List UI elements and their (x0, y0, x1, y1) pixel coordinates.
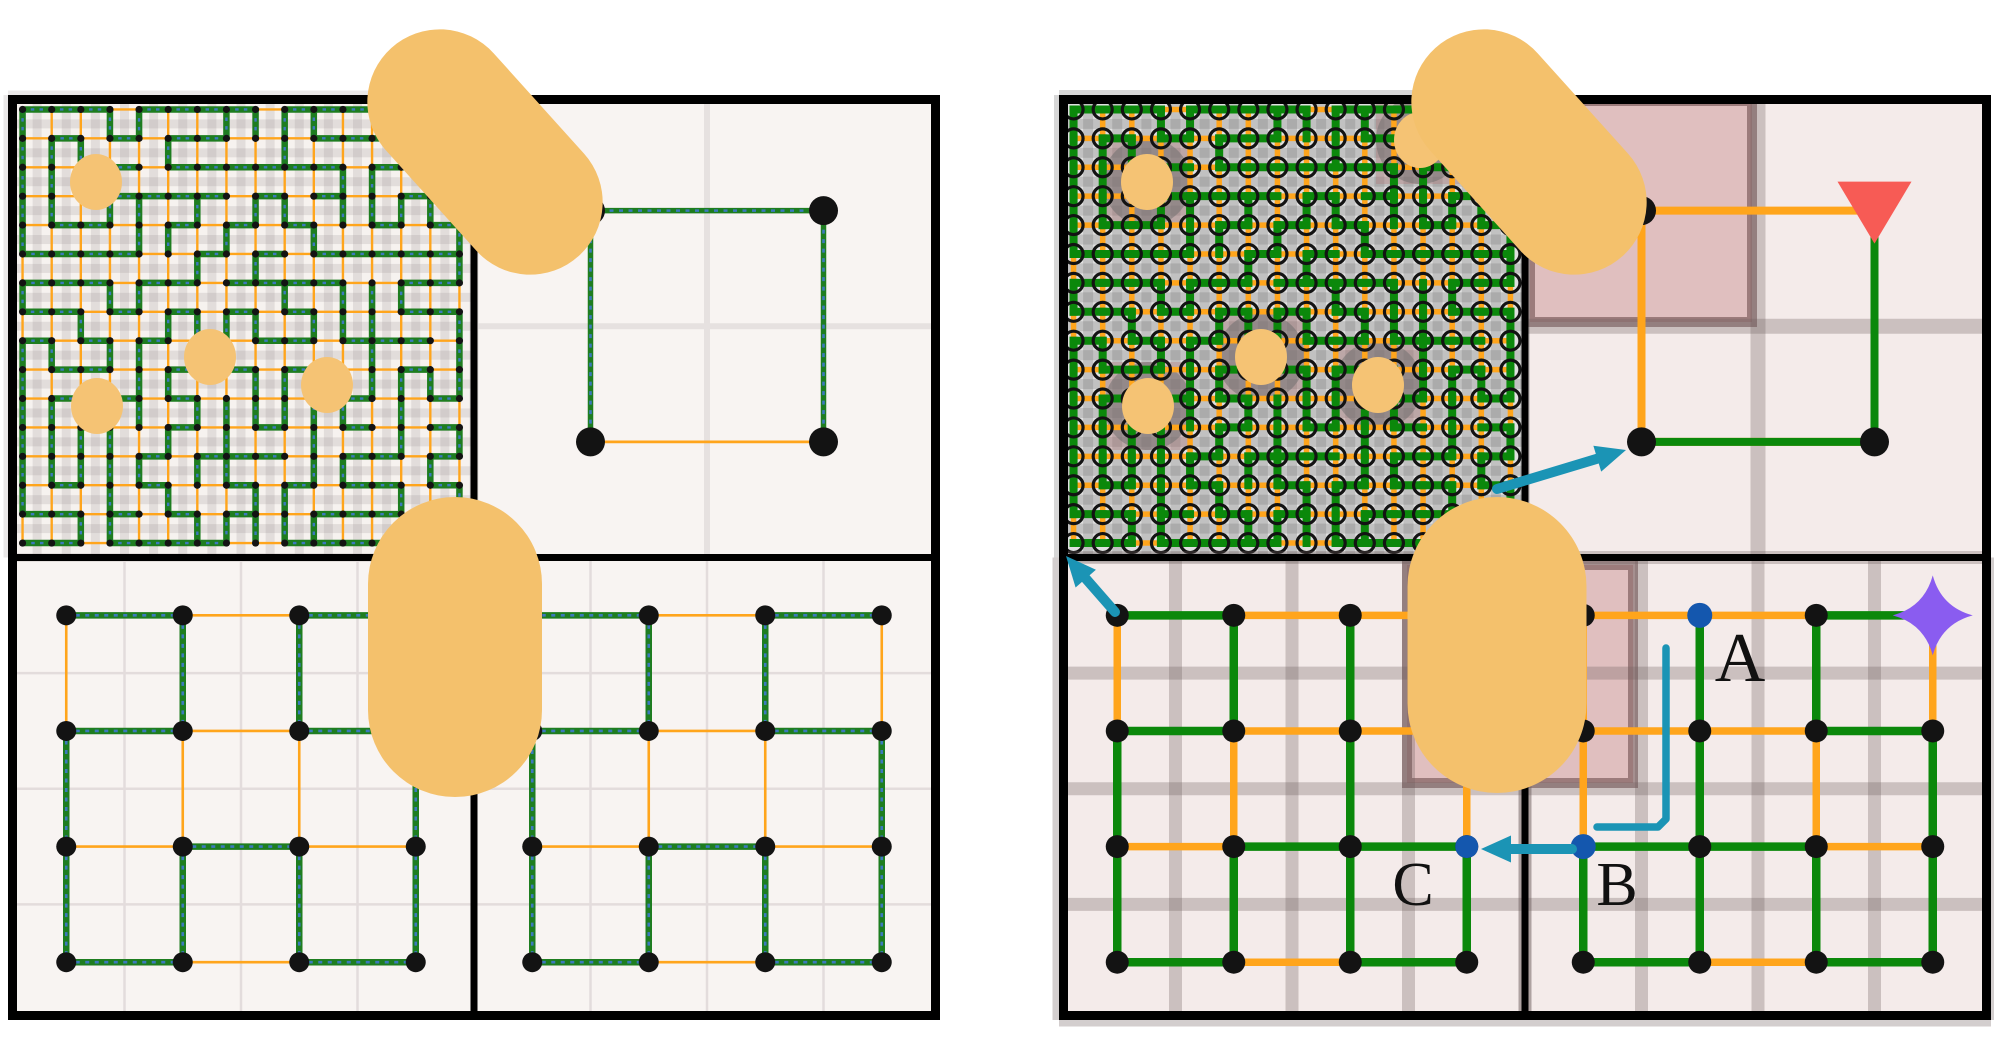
node-dot (368, 511, 375, 518)
node-dot (339, 135, 346, 142)
node-dot (1339, 835, 1362, 858)
node-dot (223, 135, 230, 142)
node-dot (755, 605, 775, 625)
node-dot (252, 221, 259, 228)
node-dot (755, 721, 775, 741)
node-dot (19, 366, 26, 373)
node-dot (19, 539, 26, 546)
node-dot (281, 221, 288, 228)
node-dot (194, 308, 201, 315)
node-dot (165, 250, 172, 257)
node-dot (281, 308, 288, 315)
node-dot (1805, 835, 1828, 858)
node-dot (398, 193, 405, 200)
node-dot (310, 193, 317, 200)
node-dot (368, 482, 375, 489)
node-dot (281, 279, 288, 286)
node-dot (281, 511, 288, 518)
thin-gridline-h (8, 903, 474, 906)
node-dot (1455, 951, 1478, 974)
node-dot (398, 337, 405, 344)
thick-gridline-h (1525, 319, 1991, 334)
node-dot (522, 837, 542, 857)
node-dot (223, 250, 230, 257)
node-dot (368, 221, 375, 228)
node-dot (135, 308, 142, 315)
waypoint-label-a: A (1715, 620, 1766, 697)
node-dot (252, 164, 259, 171)
node-dot (19, 395, 26, 402)
capsule-obstacle-right-mid (1408, 497, 1587, 793)
node-dot (639, 721, 659, 741)
node-dot (19, 511, 26, 518)
node-dot (106, 337, 113, 344)
obstacle-blob (301, 357, 353, 413)
node-dot (252, 511, 259, 518)
node-dot (135, 453, 142, 460)
node-dot (135, 193, 142, 200)
node-dot (173, 952, 193, 972)
node-dot (1805, 951, 1828, 974)
obstacle-blob (184, 329, 236, 385)
node-dot (223, 193, 230, 200)
node-dot (77, 366, 84, 373)
node-dot (252, 337, 259, 344)
node-dot (339, 221, 346, 228)
node-dot (194, 193, 201, 200)
node-dot (135, 482, 142, 489)
node-dot (427, 337, 434, 344)
node-dot (77, 106, 84, 113)
waypoint-label-b: B (1596, 851, 1637, 919)
node-dot (281, 366, 288, 373)
node-dot (1339, 951, 1362, 974)
node-dot (48, 221, 55, 228)
node-dot (106, 366, 113, 373)
node-dot (106, 453, 113, 460)
node-dot (310, 279, 317, 286)
node-dot (456, 308, 463, 315)
node-dot (310, 482, 317, 489)
node-dot (1222, 604, 1245, 627)
node-dot (1339, 719, 1362, 742)
node-dot (252, 453, 259, 460)
node-dot (48, 135, 55, 142)
node-dot (368, 308, 375, 315)
node-dot (106, 250, 113, 257)
node-dot (289, 952, 309, 972)
node-dot (1106, 835, 1129, 858)
node-dot (252, 539, 259, 546)
obstacle-blob (1235, 329, 1287, 385)
node-dot (194, 424, 201, 431)
node-dot (194, 511, 201, 518)
node-dot (872, 721, 892, 741)
node-dot (223, 539, 230, 546)
node-dot (223, 424, 230, 431)
node-dot (310, 453, 317, 460)
node-dot (310, 250, 317, 257)
node-dot (223, 106, 230, 113)
node-dot (406, 837, 426, 857)
node-dot (339, 424, 346, 431)
node-dot (281, 250, 288, 257)
node-dot (339, 279, 346, 286)
node-dot (310, 511, 317, 518)
node-dot (368, 539, 375, 546)
node-dot (456, 395, 463, 402)
node-dot (281, 193, 288, 200)
node-dot (48, 511, 55, 518)
waypoint-c-dot (1455, 835, 1478, 858)
node-dot (135, 221, 142, 228)
node-dot (1627, 427, 1656, 456)
node-dot (339, 308, 346, 315)
node-dot (223, 511, 230, 518)
node-dot (1688, 835, 1711, 858)
node-dot (281, 106, 288, 113)
node-dot (339, 106, 346, 113)
node-dot (427, 366, 434, 373)
node-dot (339, 164, 346, 171)
node-dot (427, 453, 434, 460)
node-dot (368, 424, 375, 431)
node-dot (56, 952, 76, 972)
node-dot (194, 106, 201, 113)
node-dot (456, 250, 463, 257)
node-dot (368, 337, 375, 344)
node-dot (194, 164, 201, 171)
node-dot (77, 453, 84, 460)
node-dot (48, 250, 55, 257)
obstacle-blob (71, 378, 123, 434)
node-dot (19, 221, 26, 228)
node-dot (135, 395, 142, 402)
node-dot (223, 164, 230, 171)
node-dot (456, 482, 463, 489)
node-dot (223, 308, 230, 315)
maze-figure-canvas: ABC (0, 0, 1994, 1039)
node-dot (135, 539, 142, 546)
node-dot (194, 221, 201, 228)
node-dot (77, 135, 84, 142)
thick-gridline-h (1525, 782, 1991, 795)
node-dot (339, 511, 346, 518)
node-dot (19, 453, 26, 460)
node-dot (48, 337, 55, 344)
node-dot (135, 424, 142, 431)
node-dot (48, 164, 55, 171)
node-dot (368, 135, 375, 142)
node-dot (1572, 951, 1595, 974)
mid-gridline-h (474, 323, 940, 329)
node-dot (165, 135, 172, 142)
node-dot (809, 196, 838, 225)
node-dot (755, 952, 775, 972)
node-dot (194, 135, 201, 142)
node-dot (77, 337, 84, 344)
node-dot (135, 279, 142, 286)
thick-gridline-h (1059, 782, 1525, 795)
node-dot (165, 366, 172, 373)
thick-gridline-v (1868, 558, 1881, 1021)
node-dot (194, 395, 201, 402)
node-dot (398, 482, 405, 489)
node-dot (1688, 951, 1711, 974)
node-dot (639, 837, 659, 857)
obstacle-blob (1121, 154, 1173, 210)
node-dot (872, 952, 892, 972)
node-dot (406, 952, 426, 972)
node-dot (165, 482, 172, 489)
node-dot (1222, 835, 1245, 858)
node-dot (135, 366, 142, 373)
thin-gridline-v (356, 558, 359, 1021)
node-dot (252, 250, 259, 257)
thin-gridline-h (474, 788, 940, 791)
node-dot (339, 250, 346, 257)
node-dot (427, 424, 434, 431)
node-dot (106, 221, 113, 228)
node-dot (252, 193, 259, 200)
node-dot (19, 482, 26, 489)
node-dot (165, 395, 172, 402)
node-dot (19, 279, 26, 286)
node-dot (1921, 835, 1944, 858)
node-dot (173, 721, 193, 741)
node-dot (19, 135, 26, 142)
node-dot (456, 337, 463, 344)
node-dot (48, 482, 55, 489)
node-dot (77, 539, 84, 546)
node-dot (252, 395, 259, 402)
plaid-band-h (8, 264, 474, 273)
node-dot (281, 453, 288, 460)
node-dot (19, 308, 26, 315)
node-dot (1805, 719, 1828, 742)
node-dot (368, 453, 375, 460)
thin-gridline-h (474, 903, 940, 906)
node-dot (339, 539, 346, 546)
plaid-band-h (1059, 235, 1525, 245)
obstacle-blob (1352, 357, 1404, 413)
node-dot (872, 605, 892, 625)
node-dot (1805, 604, 1828, 627)
node-dot (48, 539, 55, 546)
node-dot (194, 279, 201, 286)
node-dot (1106, 951, 1129, 974)
node-dot (19, 337, 26, 344)
thin-gridline-v (822, 558, 825, 1021)
node-dot (165, 337, 172, 344)
node-dot (223, 279, 230, 286)
node-dot (48, 424, 55, 431)
node-dot (1921, 719, 1944, 742)
node-dot (252, 279, 259, 286)
node-dot (339, 193, 346, 200)
node-dot (48, 106, 55, 113)
node-dot (281, 337, 288, 344)
node-dot (135, 164, 142, 171)
node-dot (165, 193, 172, 200)
node-dot (281, 395, 288, 402)
node-dot (165, 221, 172, 228)
node-dot (165, 164, 172, 171)
node-dot (310, 221, 317, 228)
node-dot (48, 453, 55, 460)
node-dot (194, 453, 201, 460)
node-dot (1921, 951, 1944, 974)
node-dot (1106, 719, 1129, 742)
node-dot (165, 279, 172, 286)
node-dot (398, 221, 405, 228)
node-dot (48, 279, 55, 286)
node-dot (19, 164, 26, 171)
node-dot (19, 250, 26, 257)
node-dot (872, 837, 892, 857)
node-dot (809, 427, 838, 456)
node-dot (77, 308, 84, 315)
node-dot (194, 250, 201, 257)
node-dot (135, 106, 142, 113)
node-dot (427, 308, 434, 315)
maze-planning-figure: ABC (0, 0, 1994, 1039)
node-dot (135, 250, 142, 257)
node-dot (252, 308, 259, 315)
node-dot (522, 952, 542, 972)
node-dot (1222, 719, 1245, 742)
node-dot (281, 164, 288, 171)
node-dot (398, 308, 405, 315)
node-dot (289, 721, 309, 741)
node-dot (398, 395, 405, 402)
node-dot (1339, 604, 1362, 627)
node-dot (368, 279, 375, 286)
obstacle-blob (1122, 378, 1174, 434)
node-dot (456, 453, 463, 460)
node-dot (106, 308, 113, 315)
node-dot (252, 106, 259, 113)
node-dot (77, 511, 84, 518)
node-dot (310, 337, 317, 344)
node-dot (427, 482, 434, 489)
node-dot (135, 511, 142, 518)
node-dot (456, 424, 463, 431)
node-dot (48, 193, 55, 200)
obstacle-blob (70, 154, 122, 210)
node-dot (252, 482, 259, 489)
node-dot (398, 250, 405, 257)
plaid-band-h (8, 235, 474, 244)
thick-gridline-h (1059, 898, 1525, 911)
node-dot (19, 106, 26, 113)
node-dot (106, 482, 113, 489)
node-dot (252, 424, 259, 431)
thick-gridline-h (1525, 898, 1991, 911)
node-dot (289, 837, 309, 857)
node-dot (1688, 719, 1711, 742)
node-dot (165, 511, 172, 518)
node-dot (427, 250, 434, 257)
node-dot (368, 193, 375, 200)
node-dot (165, 453, 172, 460)
node-dot (281, 539, 288, 546)
node-dot (165, 424, 172, 431)
node-dot (56, 605, 76, 625)
waypoint-a-dot (1687, 603, 1712, 628)
node-dot (106, 279, 113, 286)
node-dot (281, 135, 288, 142)
capsule-obstacle-left-mid (368, 497, 542, 797)
node-dot (281, 482, 288, 489)
node-dot (368, 250, 375, 257)
node-dot (77, 250, 84, 257)
node-dot (456, 279, 463, 286)
node-dot (310, 164, 317, 171)
plaid-band-h (8, 351, 474, 360)
node-dot (310, 539, 317, 546)
waypoint-label-c: C (1392, 851, 1433, 919)
node-dot (1860, 427, 1889, 456)
node-dot (339, 453, 346, 460)
node-dot (368, 366, 375, 373)
node-dot (368, 164, 375, 171)
node-dot (427, 395, 434, 402)
node-dot (310, 106, 317, 113)
node-dot (281, 424, 288, 431)
node-dot (339, 482, 346, 489)
node-dot (398, 453, 405, 460)
node-dot (173, 837, 193, 857)
node-dot (576, 427, 605, 456)
node-dot (19, 424, 26, 431)
node-dot (19, 193, 26, 200)
node-dot (427, 221, 434, 228)
node-dot (48, 395, 55, 402)
node-dot (398, 424, 405, 431)
node-dot (165, 539, 172, 546)
node-dot (106, 135, 113, 142)
node-dot (48, 366, 55, 373)
node-dot (165, 308, 172, 315)
node-dot (135, 337, 142, 344)
node-dot (252, 366, 259, 373)
node-dot (194, 482, 201, 489)
node-dot (398, 366, 405, 373)
node-dot (456, 366, 463, 373)
node-dot (106, 106, 113, 113)
node-dot (106, 539, 113, 546)
node-dot (106, 511, 113, 518)
node-dot (289, 605, 309, 625)
node-dot (310, 135, 317, 142)
node-dot (339, 337, 346, 344)
node-dot (427, 279, 434, 286)
node-dot (368, 395, 375, 402)
plaid-band-h (1059, 263, 1525, 273)
node-dot (48, 308, 55, 315)
node-dot (165, 106, 172, 113)
node-dot (173, 605, 193, 625)
node-dot (77, 279, 84, 286)
node-dot (398, 279, 405, 286)
node-dot (223, 395, 230, 402)
node-dot (310, 308, 317, 315)
node-dot (223, 453, 230, 460)
node-dot (56, 721, 76, 741)
node-dot (223, 482, 230, 489)
node-dot (223, 221, 230, 228)
